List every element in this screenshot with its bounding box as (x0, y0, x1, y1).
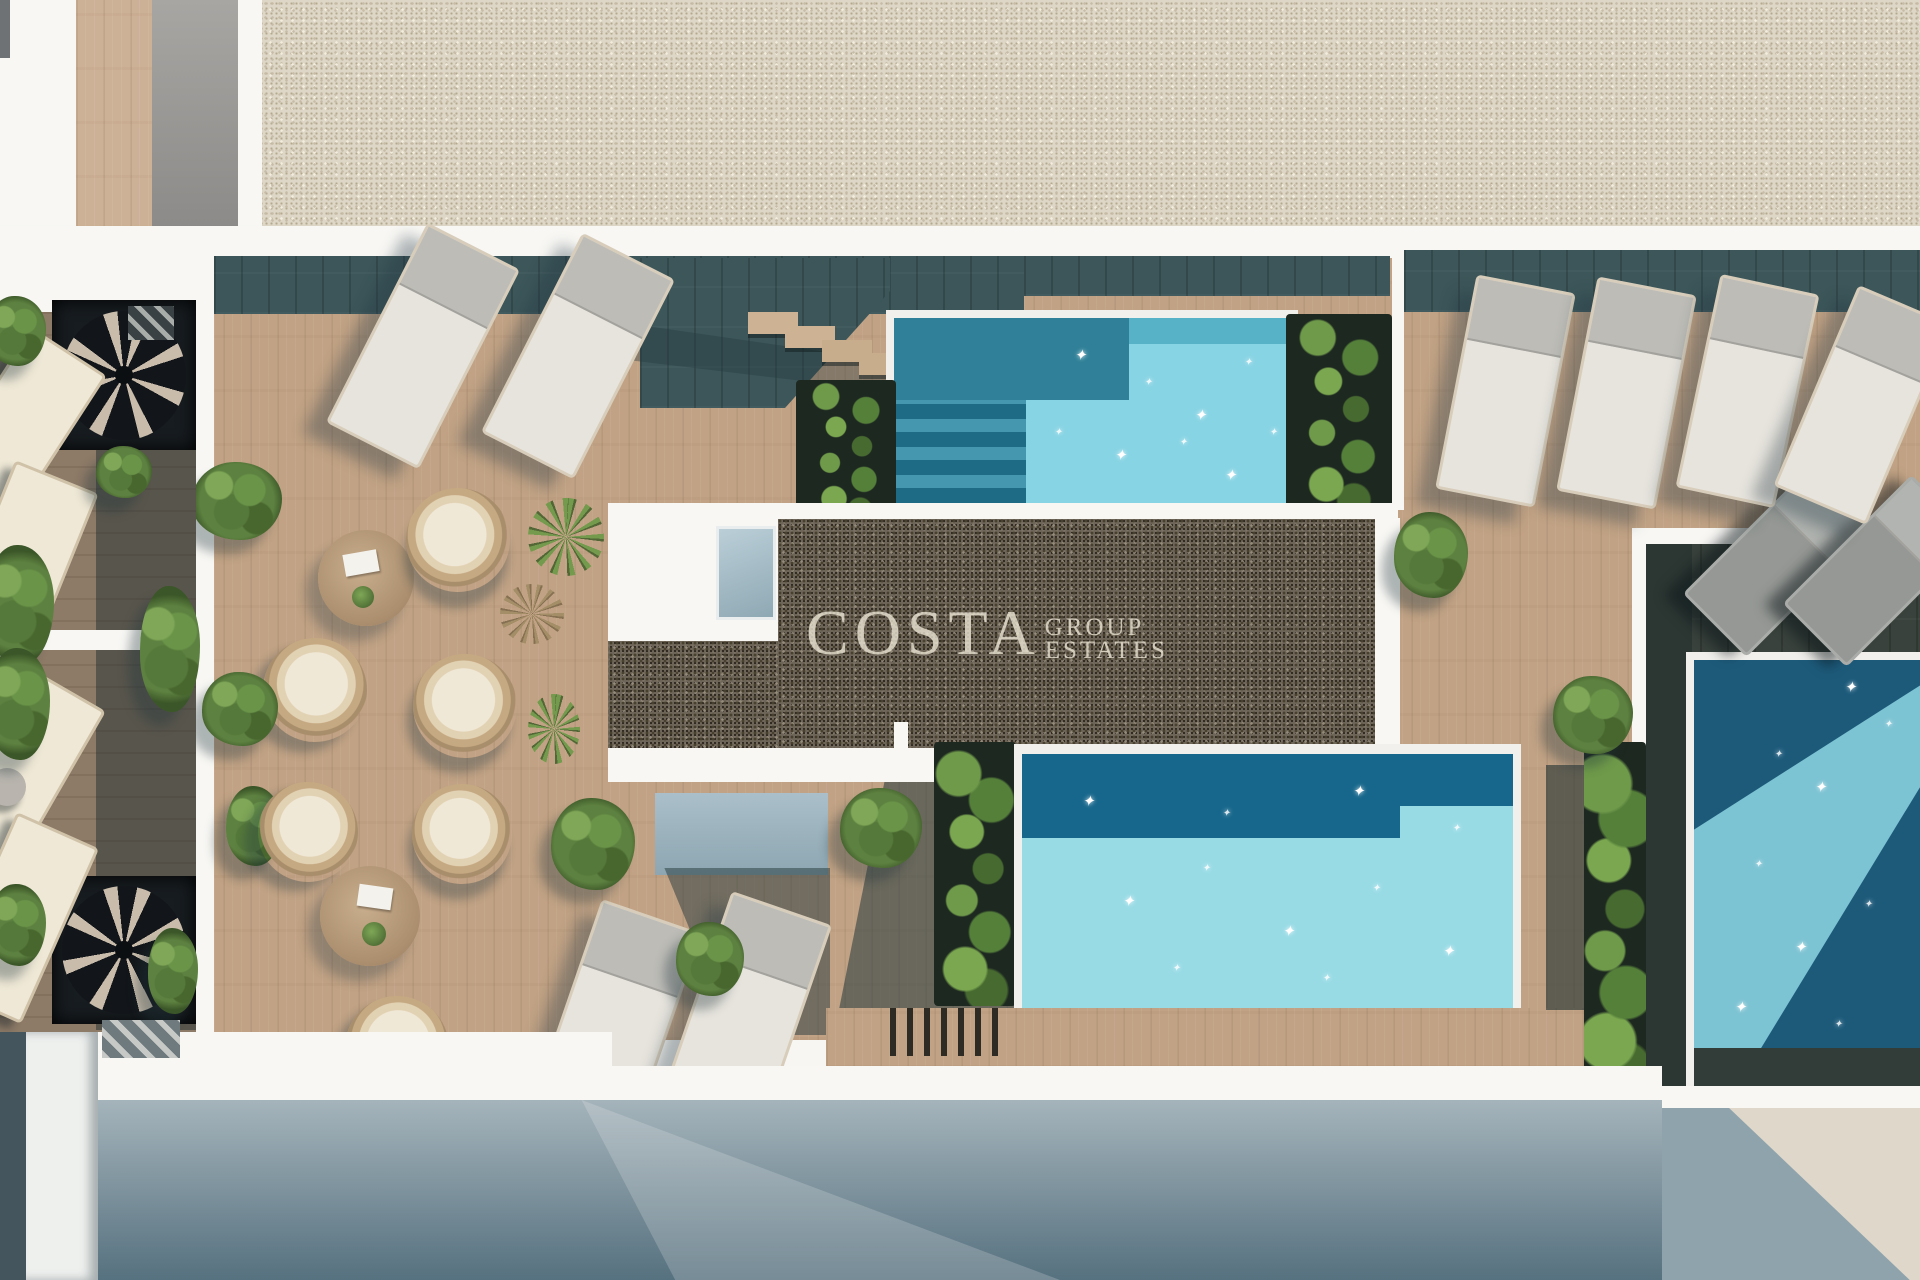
skylight (716, 526, 776, 620)
ground-beige-shadow-wedge (1662, 1108, 1920, 1280)
pool-1-step (894, 460, 1026, 475)
table-book (357, 884, 394, 911)
pool-1-step (894, 488, 1026, 503)
lower-walkway (826, 1008, 1662, 1068)
ground-light-wedge (540, 1100, 1060, 1280)
ground-beige-area (1662, 1108, 1920, 1280)
skylight-hatch (102, 1020, 180, 1058)
lounger-headrest (1588, 280, 1693, 360)
pool-3: ✦✦ ✦✦ ✦✦ ✦✦ ✦ (1686, 652, 1920, 1092)
spiral-staircase-hub (115, 941, 132, 959)
wall-plants (140, 586, 200, 712)
pool-2: ✦✦ ✦✦ ✦✦ ✦✦ ✦✦ ✦ (1014, 744, 1521, 1016)
top-left-gray-strip (152, 0, 238, 232)
ground-dark-edge (0, 1032, 26, 1280)
spiral-staircase-hub (115, 366, 132, 384)
bush (676, 922, 744, 996)
bush (202, 672, 278, 746)
ground-pillar (26, 1032, 98, 1280)
right-climbing-planter (1584, 742, 1646, 1090)
bottom-parapet-mid (612, 1066, 1662, 1102)
pool-1-left-planter (796, 380, 896, 518)
pool-1: ✦✦ ✦✦ ✦✦ ✦✦ ✦ (886, 310, 1298, 516)
bush (1394, 512, 1468, 598)
palm-plant (528, 694, 580, 764)
coffee-table (320, 866, 420, 966)
top-left-dark-edge (0, 0, 10, 58)
watermark-line2: ESTATES (1045, 639, 1168, 662)
glass-balustrade-shadow (655, 793, 828, 875)
bush (840, 788, 922, 868)
pool-1-top-water (1129, 318, 1290, 344)
gravel-roof-left-ext (608, 640, 778, 748)
pool-1-right-planter (1286, 314, 1392, 512)
coffee-table (318, 530, 414, 626)
top-left-wood-strip (76, 0, 152, 232)
watermark-line1: GROUP (1045, 616, 1168, 639)
bottom-parapet-right (1662, 1086, 1920, 1108)
balcony-tree (96, 446, 152, 498)
pool-1-right-wall (1392, 258, 1404, 510)
dry-grass-plant (500, 584, 564, 644)
pool-1-step (894, 404, 1026, 419)
wall-plants (148, 928, 198, 1014)
bush (192, 462, 282, 540)
upper-gravel-terrace (262, 0, 1920, 226)
pool-2-left-planter (934, 742, 1016, 1006)
render-canvas: ✦✦ ✦✦ ✦✦ ✦✦ ✦ COSTA GROUP ESTATES (0, 0, 1920, 1280)
stair-railing-hatch (128, 306, 174, 340)
ground-shadow-area (0, 1100, 1662, 1280)
lounger-headrest (1467, 278, 1572, 358)
pool-1-step (894, 432, 1026, 447)
watermark: COSTA GROUP ESTATES (806, 600, 1168, 662)
palm-plant (528, 498, 604, 576)
deck-shade-band-mid (1024, 256, 1390, 296)
pool-1-shaded-water (894, 318, 1129, 400)
bush (551, 798, 635, 890)
table-plant (352, 586, 374, 608)
table-plant (362, 922, 386, 946)
bush (1553, 676, 1633, 754)
watermark-brand: COSTA (806, 604, 1041, 662)
